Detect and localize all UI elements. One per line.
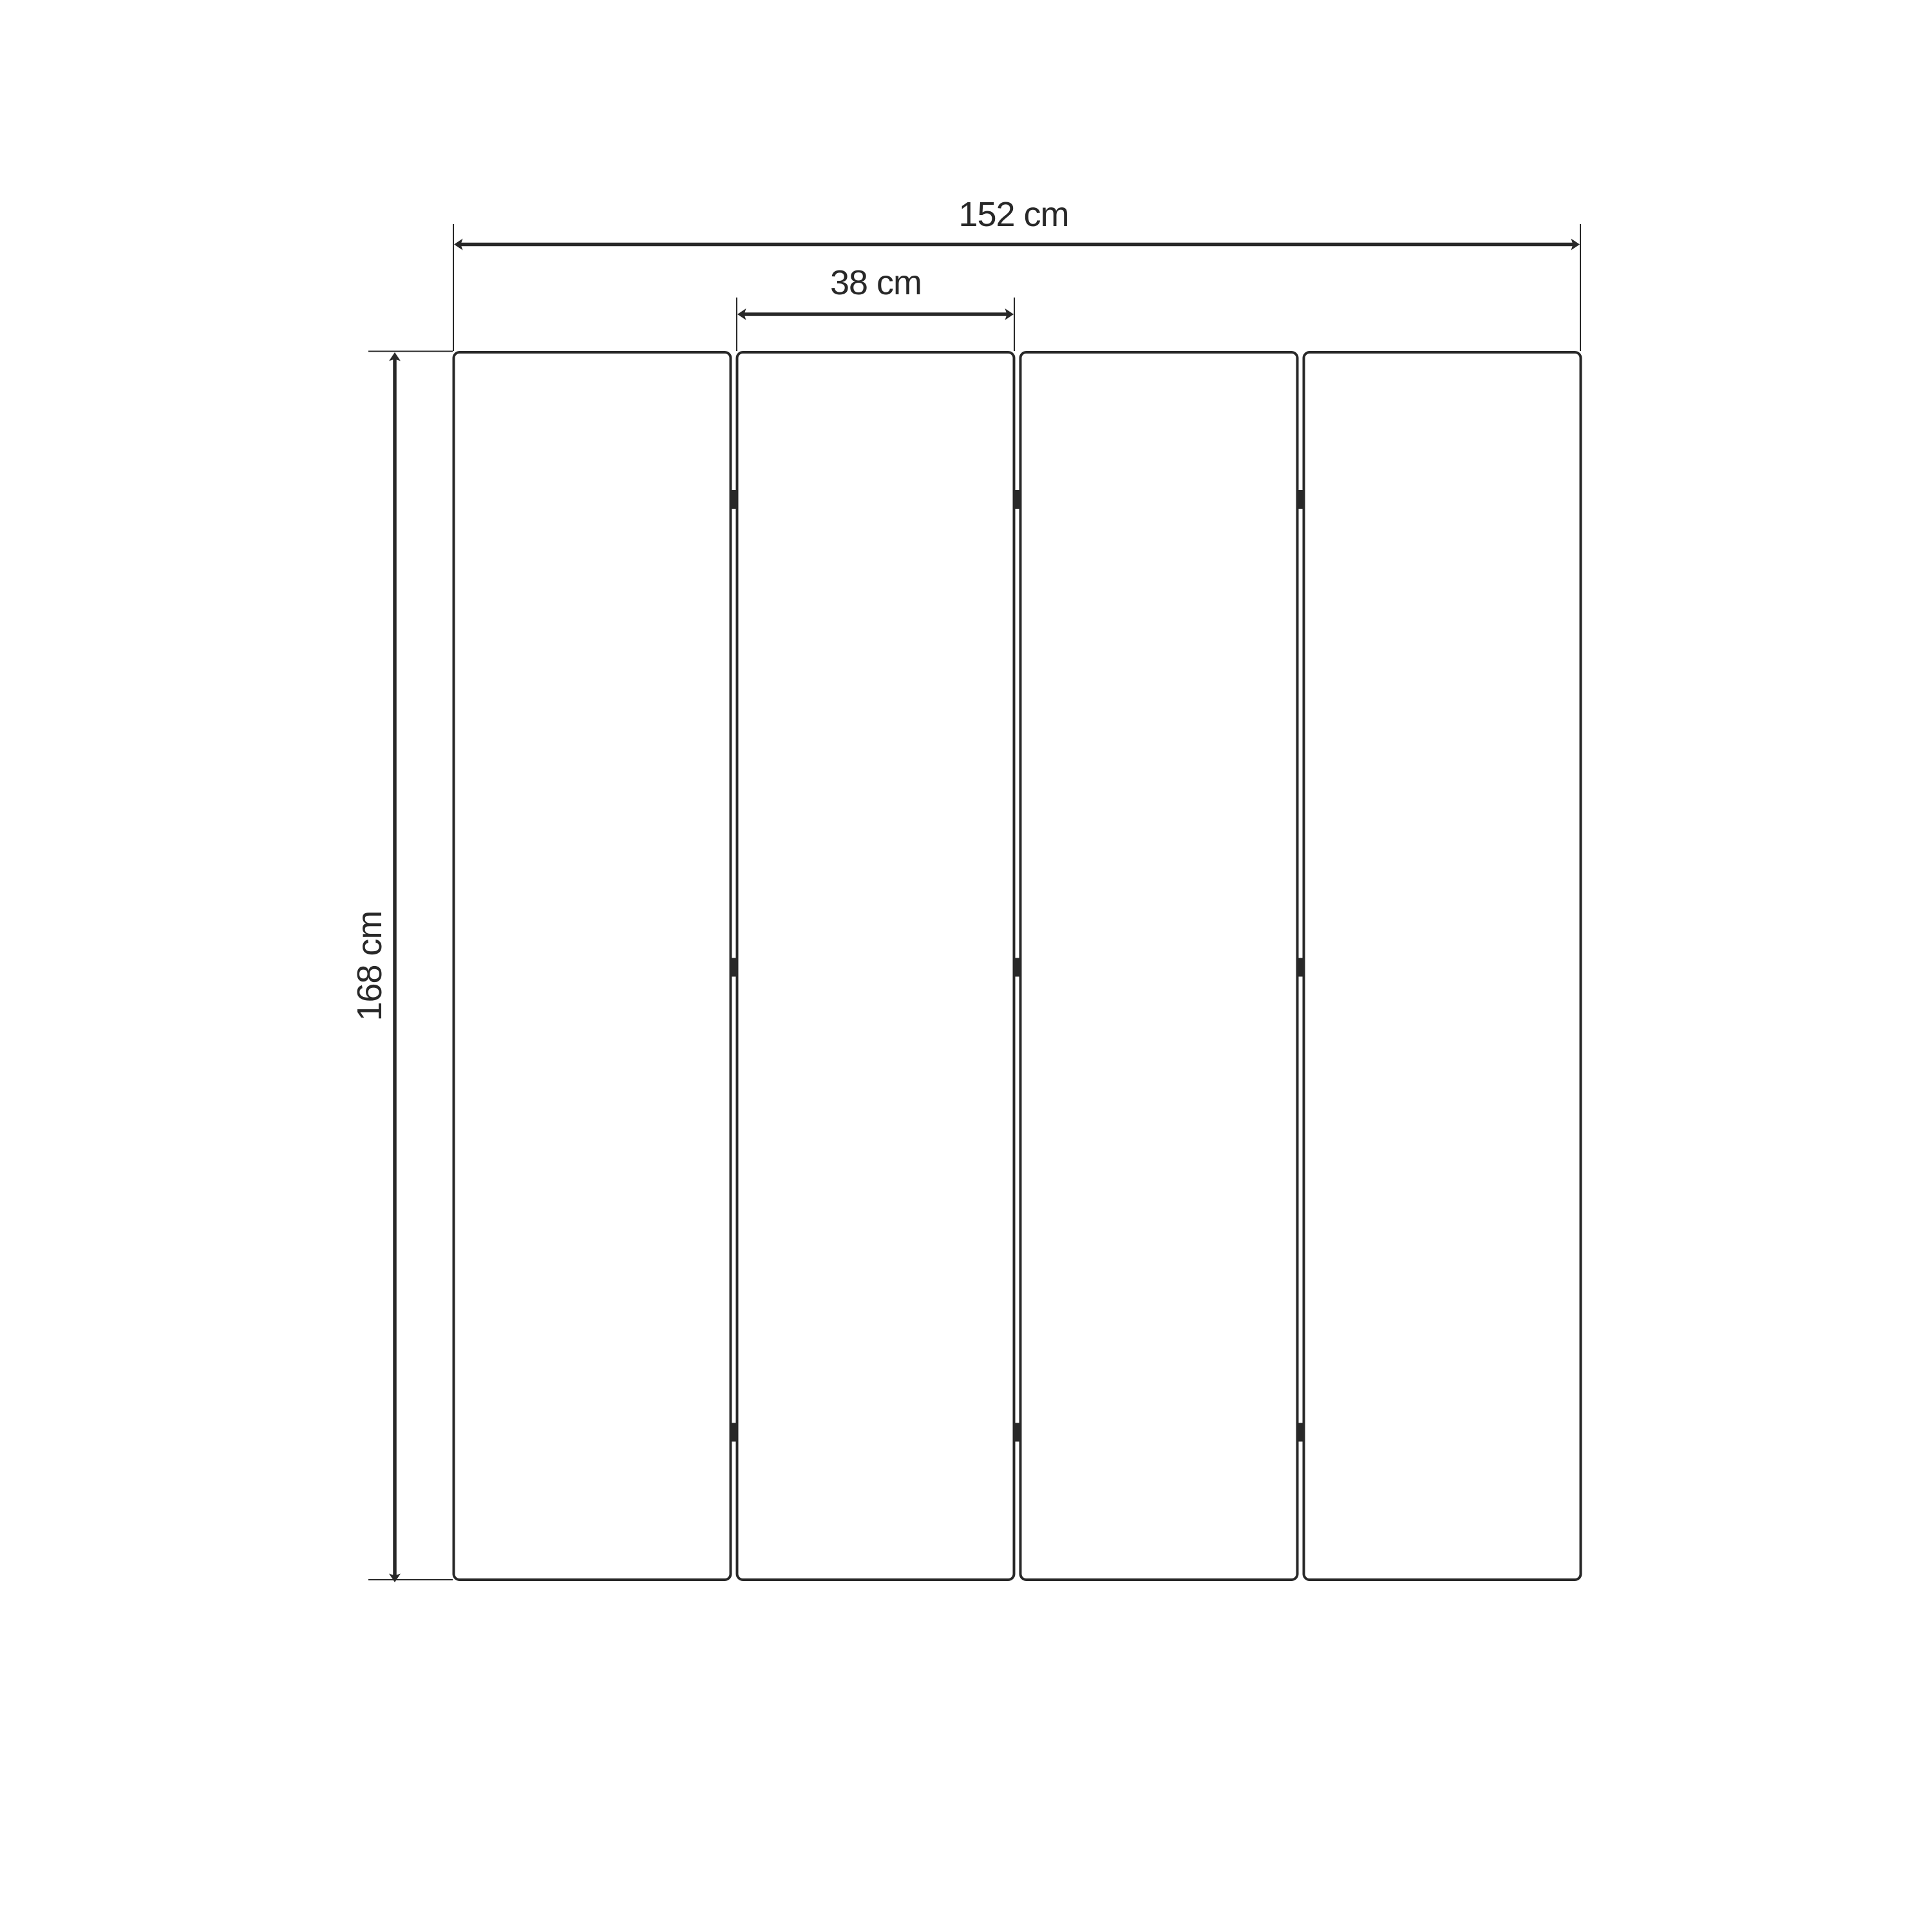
svg-text:168 cm: 168 cm [350, 911, 389, 1021]
svg-text:152 cm: 152 cm [958, 195, 1068, 234]
svg-text:38 cm: 38 cm [830, 263, 922, 302]
